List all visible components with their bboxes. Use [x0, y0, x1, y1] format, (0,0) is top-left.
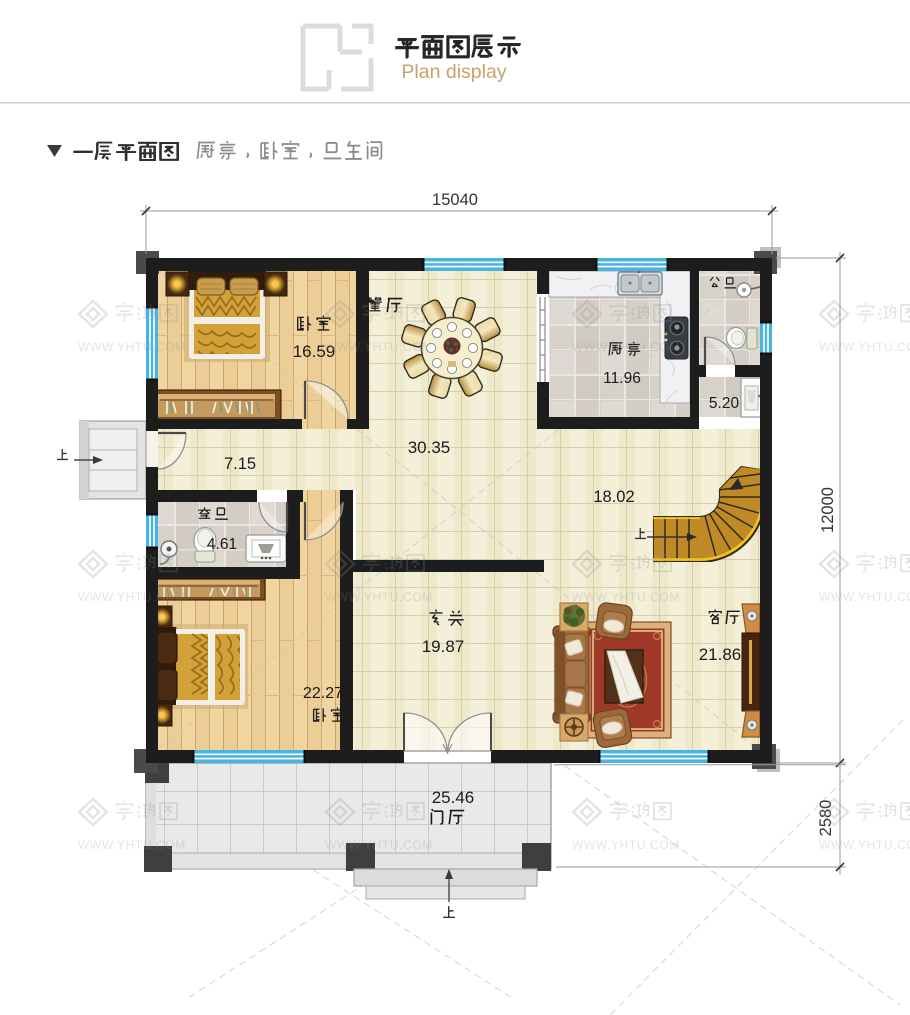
svg-text:4.61: 4.61 — [207, 536, 237, 553]
svg-text:WWW.YHTU.COM: WWW.YHTU.COM — [819, 838, 910, 852]
svg-text:15040: 15040 — [432, 191, 478, 209]
svg-text:WWW.YHTU.COM: WWW.YHTU.COM — [78, 340, 186, 354]
svg-text:WWW.YHTU.COM: WWW.YHTU.COM — [325, 838, 433, 852]
svg-text:5.20: 5.20 — [709, 395, 740, 412]
svg-text:WWW.YHTU.COM: WWW.YHTU.COM — [819, 340, 910, 354]
svg-text:12000: 12000 — [819, 487, 837, 533]
svg-text:7.15: 7.15 — [224, 455, 256, 473]
svg-text:WWW.YHTU.COM: WWW.YHTU.COM — [78, 590, 186, 604]
svg-text:WWW.YHTU.COM: WWW.YHTU.COM — [325, 340, 433, 354]
svg-text:WWW.YHTU.COM: WWW.YHTU.COM — [572, 590, 680, 604]
svg-text:Plan display: Plan display — [401, 61, 506, 83]
svg-text:WWW.YHTU.COM: WWW.YHTU.COM — [572, 838, 680, 852]
svg-text:WWW.YHTU.COM: WWW.YHTU.COM — [819, 590, 910, 604]
svg-text:30.35: 30.35 — [408, 438, 451, 457]
svg-text:19.87: 19.87 — [422, 637, 465, 656]
svg-text:WWW.YHTU.COM: WWW.YHTU.COM — [572, 340, 680, 354]
svg-text:25.46: 25.46 — [432, 788, 475, 807]
svg-text:18.02: 18.02 — [593, 488, 634, 506]
svg-text:21.86: 21.86 — [699, 645, 742, 664]
svg-text:22.27: 22.27 — [303, 685, 343, 702]
svg-text:11.96: 11.96 — [603, 370, 641, 387]
svg-text:WWW.YHTU.COM: WWW.YHTU.COM — [78, 838, 186, 852]
svg-text:WWW.YHTU.COM: WWW.YHTU.COM — [325, 590, 433, 604]
